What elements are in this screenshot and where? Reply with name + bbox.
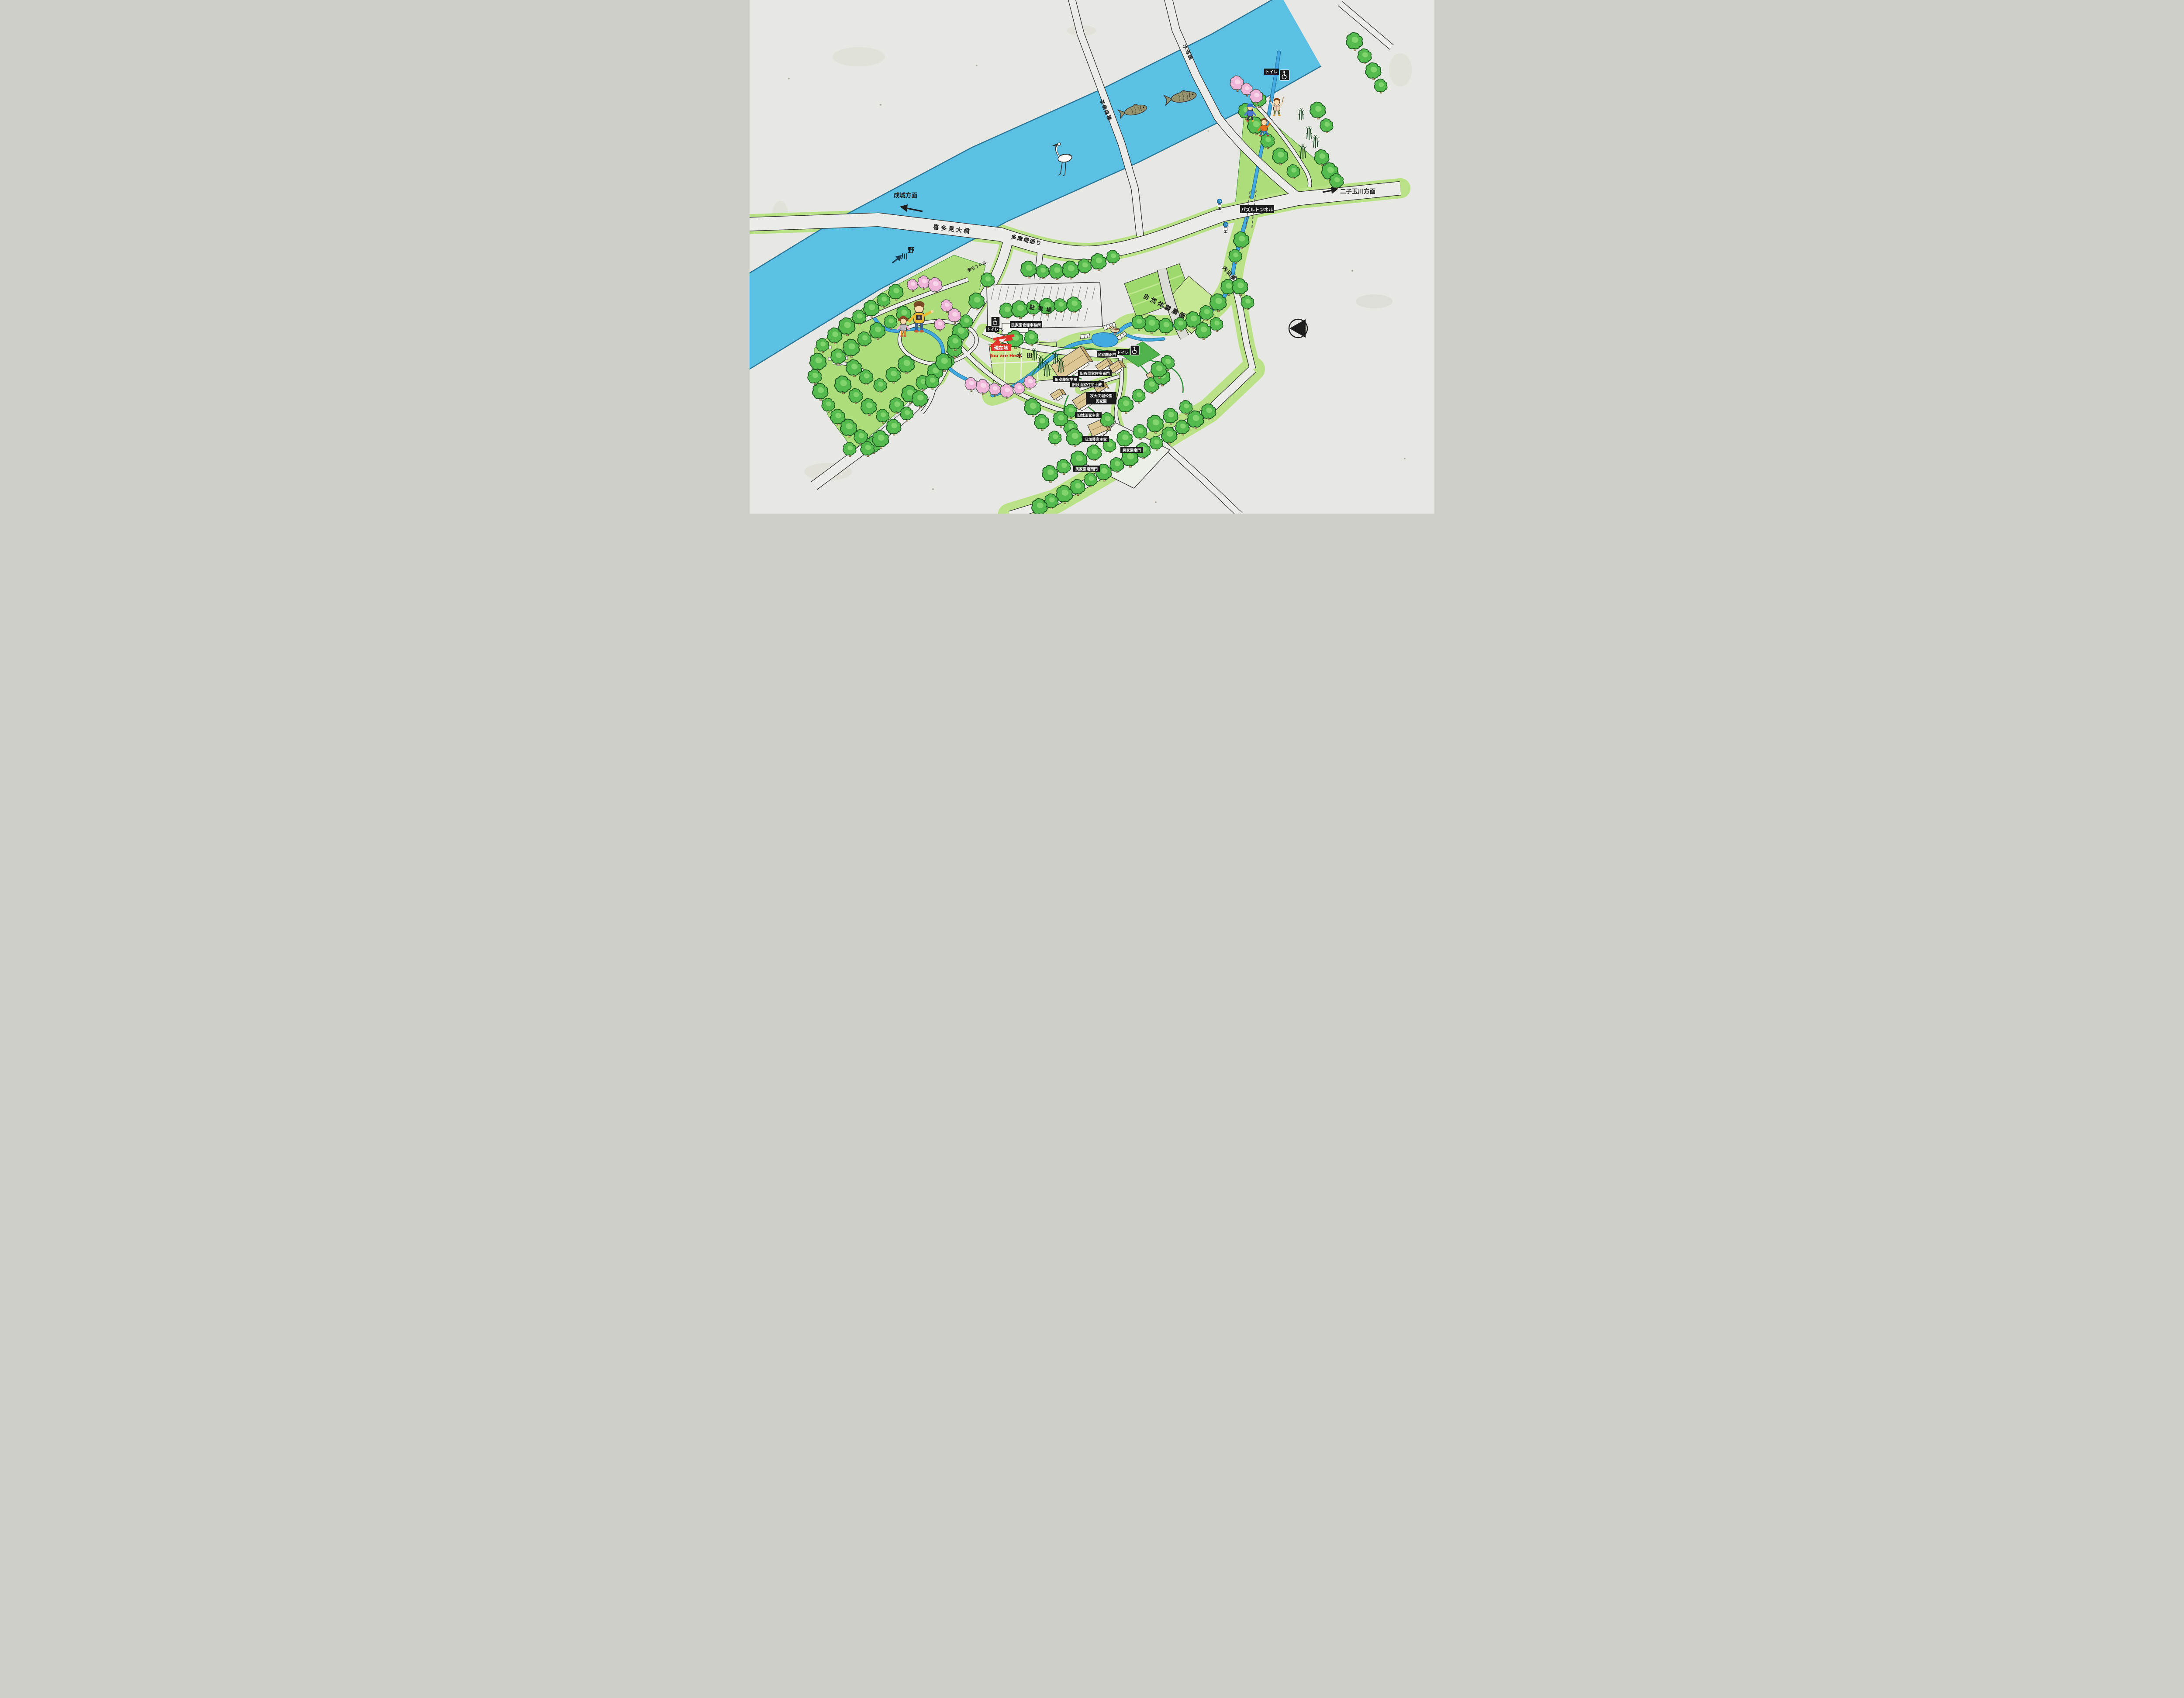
- gate-southwest-text: 民家園南西門: [1075, 467, 1098, 472]
- label-park-name: 次大夫堀公園 民家園: [1086, 392, 1116, 404]
- bus-stop-label: バス: [1217, 200, 1222, 203]
- river-char-no: 野: [908, 246, 914, 254]
- direction-futako: 二子玉川方面: [1340, 188, 1376, 195]
- you-are-here-text: You are Here: [989, 353, 1021, 359]
- office-text: 民家園管理事務所: [1011, 323, 1041, 328]
- label-office: 民家園管理事務所: [1010, 321, 1042, 328]
- house-kato-text: 旧加藤家主家: [1085, 437, 1107, 442]
- toilet-text: トイレ: [987, 327, 999, 332]
- label-house-tanioka: 旧谷岡家住宅表門: [1078, 370, 1112, 376]
- gate-main-text: 民家園正門: [1098, 352, 1116, 357]
- wheelchair-icon: [991, 317, 1000, 326]
- bus-stop-label: バス: [1223, 224, 1228, 226]
- label-gate-south: 民家園南門: [1120, 447, 1143, 453]
- label-house-akiyama: 旧秋山家住宅土蔵: [1070, 381, 1104, 387]
- toilet-text: トイレ: [1117, 350, 1129, 355]
- gate-x-mark: ✕: [1001, 329, 1004, 333]
- map-svg: バス バス 成城方面 二子玉川方面 喜多見大橋 多摩堤通り 水道橋 茶屋道橋 内…: [750, 0, 1434, 514]
- label-house-kato: 旧加藤家主家: [1082, 436, 1109, 442]
- house-shirota-text: 旧城田家主家: [1077, 413, 1100, 418]
- gate-south-text: 民家園南門: [1123, 448, 1141, 453]
- genzaichi-text: 現在地: [994, 345, 1009, 351]
- direction-seijo: 成城方面: [894, 192, 918, 199]
- park-map-sign: バス バス 成城方面 二子玉川方面 喜多見大橋 多摩堤通り 水道橋 茶屋道橋 内…: [750, 0, 1434, 514]
- wheelchair-icon: [1280, 70, 1289, 80]
- house-akiyama-text: 旧秋山家住宅土蔵: [1072, 383, 1102, 387]
- wheelchair-icon: [1130, 345, 1139, 355]
- park-name-line1: 次大夫堀公園: [1090, 394, 1112, 399]
- duck-pond: [1092, 333, 1118, 347]
- label-gate-southwest: 民家園南西門: [1073, 466, 1100, 472]
- label-tunnel: パズルトンネル: [1240, 205, 1274, 213]
- park-name-line2: 民家園: [1095, 399, 1107, 404]
- label-gate-main: 民家園正門: [1097, 351, 1117, 357]
- tunnel-text: パズルトンネル: [1241, 207, 1273, 213]
- house-tanioka-text: 旧谷岡家住宅表門: [1080, 371, 1109, 376]
- label-house-ando: 旧安藤家主屋: [1053, 376, 1079, 382]
- label-house-shirota: 旧城田家主家: [1075, 412, 1102, 418]
- river-char-kawa: 川: [901, 252, 908, 260]
- toilet-text: トイレ: [1265, 70, 1278, 75]
